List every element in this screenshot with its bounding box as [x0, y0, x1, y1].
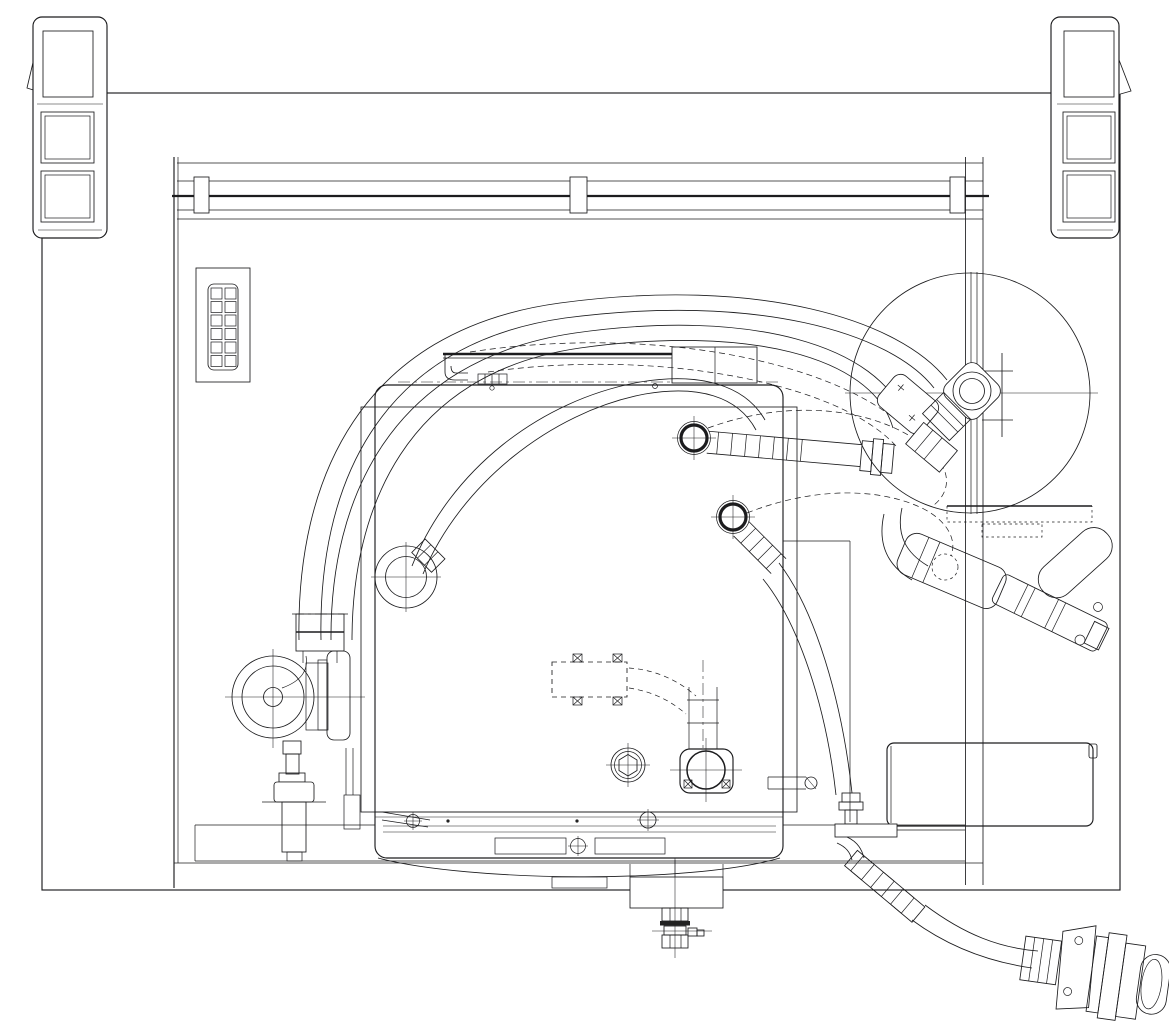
- discharge-connector: [1016, 916, 1169, 1027]
- discharge-hose: [837, 837, 1038, 968]
- vent-panel-left: [27, 17, 107, 238]
- tank-top-bar: [443, 347, 757, 390]
- service-block: [850, 743, 1097, 830]
- vent-panel-right: [1051, 17, 1131, 238]
- mounting-plate: [947, 506, 1092, 537]
- bottom-valve: [630, 860, 723, 958]
- top-rail: [172, 163, 989, 219]
- cad-sheet: [0, 0, 1169, 1029]
- spray-assembly: [882, 508, 1119, 654]
- cad-canvas: [0, 0, 1169, 1029]
- control-keypad: [196, 268, 250, 382]
- tank: [344, 347, 817, 888]
